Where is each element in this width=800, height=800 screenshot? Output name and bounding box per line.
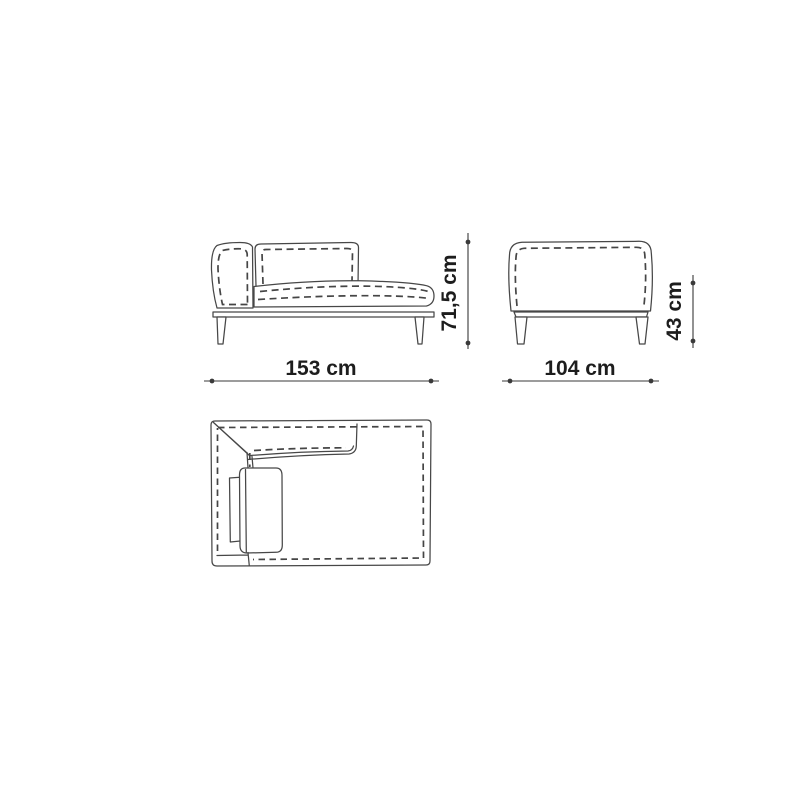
dimension-endpoint-dot [691, 339, 696, 344]
depth-label: 104 cm [544, 357, 615, 380]
dimension-endpoint-dot [649, 379, 654, 384]
front-width-label: 153 cm [285, 357, 356, 380]
dimension-endpoint-dot [691, 281, 696, 286]
side-body-outline [509, 241, 653, 311]
dimension-endpoint-dot [429, 379, 434, 384]
plan-armrest-panel [230, 477, 241, 542]
dimension-endpoint-dot [466, 240, 471, 245]
dimension-endpoint-dot [210, 379, 215, 384]
side-left-leg [515, 317, 527, 344]
technical-drawing-canvas: 153 cm 71,5 cm 104 cm 43 cm [0, 0, 800, 800]
side-right-leg [636, 317, 648, 344]
side-view [509, 241, 653, 344]
front-right-leg [415, 317, 424, 344]
dimension-overall-height: 71,5 cm [438, 233, 470, 349]
furniture-dimension-diagram: 153 cm 71,5 cm 104 cm 43 cm [0, 0, 800, 800]
dimension-endpoint-dot [508, 379, 513, 384]
top-view [211, 420, 431, 566]
front-seat-outline [254, 281, 434, 307]
overall-height-label: 71,5 cm [438, 254, 461, 331]
dimension-seat-height: 43 cm [663, 275, 695, 348]
dimension-endpoint-dot [466, 341, 471, 346]
plan-armrest-cushion-inner-edge [246, 470, 247, 553]
dimension-front-width: 153 cm [204, 357, 439, 383]
side-base-rail [514, 312, 648, 317]
front-base-rail [213, 312, 434, 317]
front-left-leg [217, 317, 226, 344]
dimension-depth: 104 cm [502, 357, 659, 383]
seat-height-label: 43 cm [663, 281, 686, 341]
front-view [211, 243, 434, 345]
